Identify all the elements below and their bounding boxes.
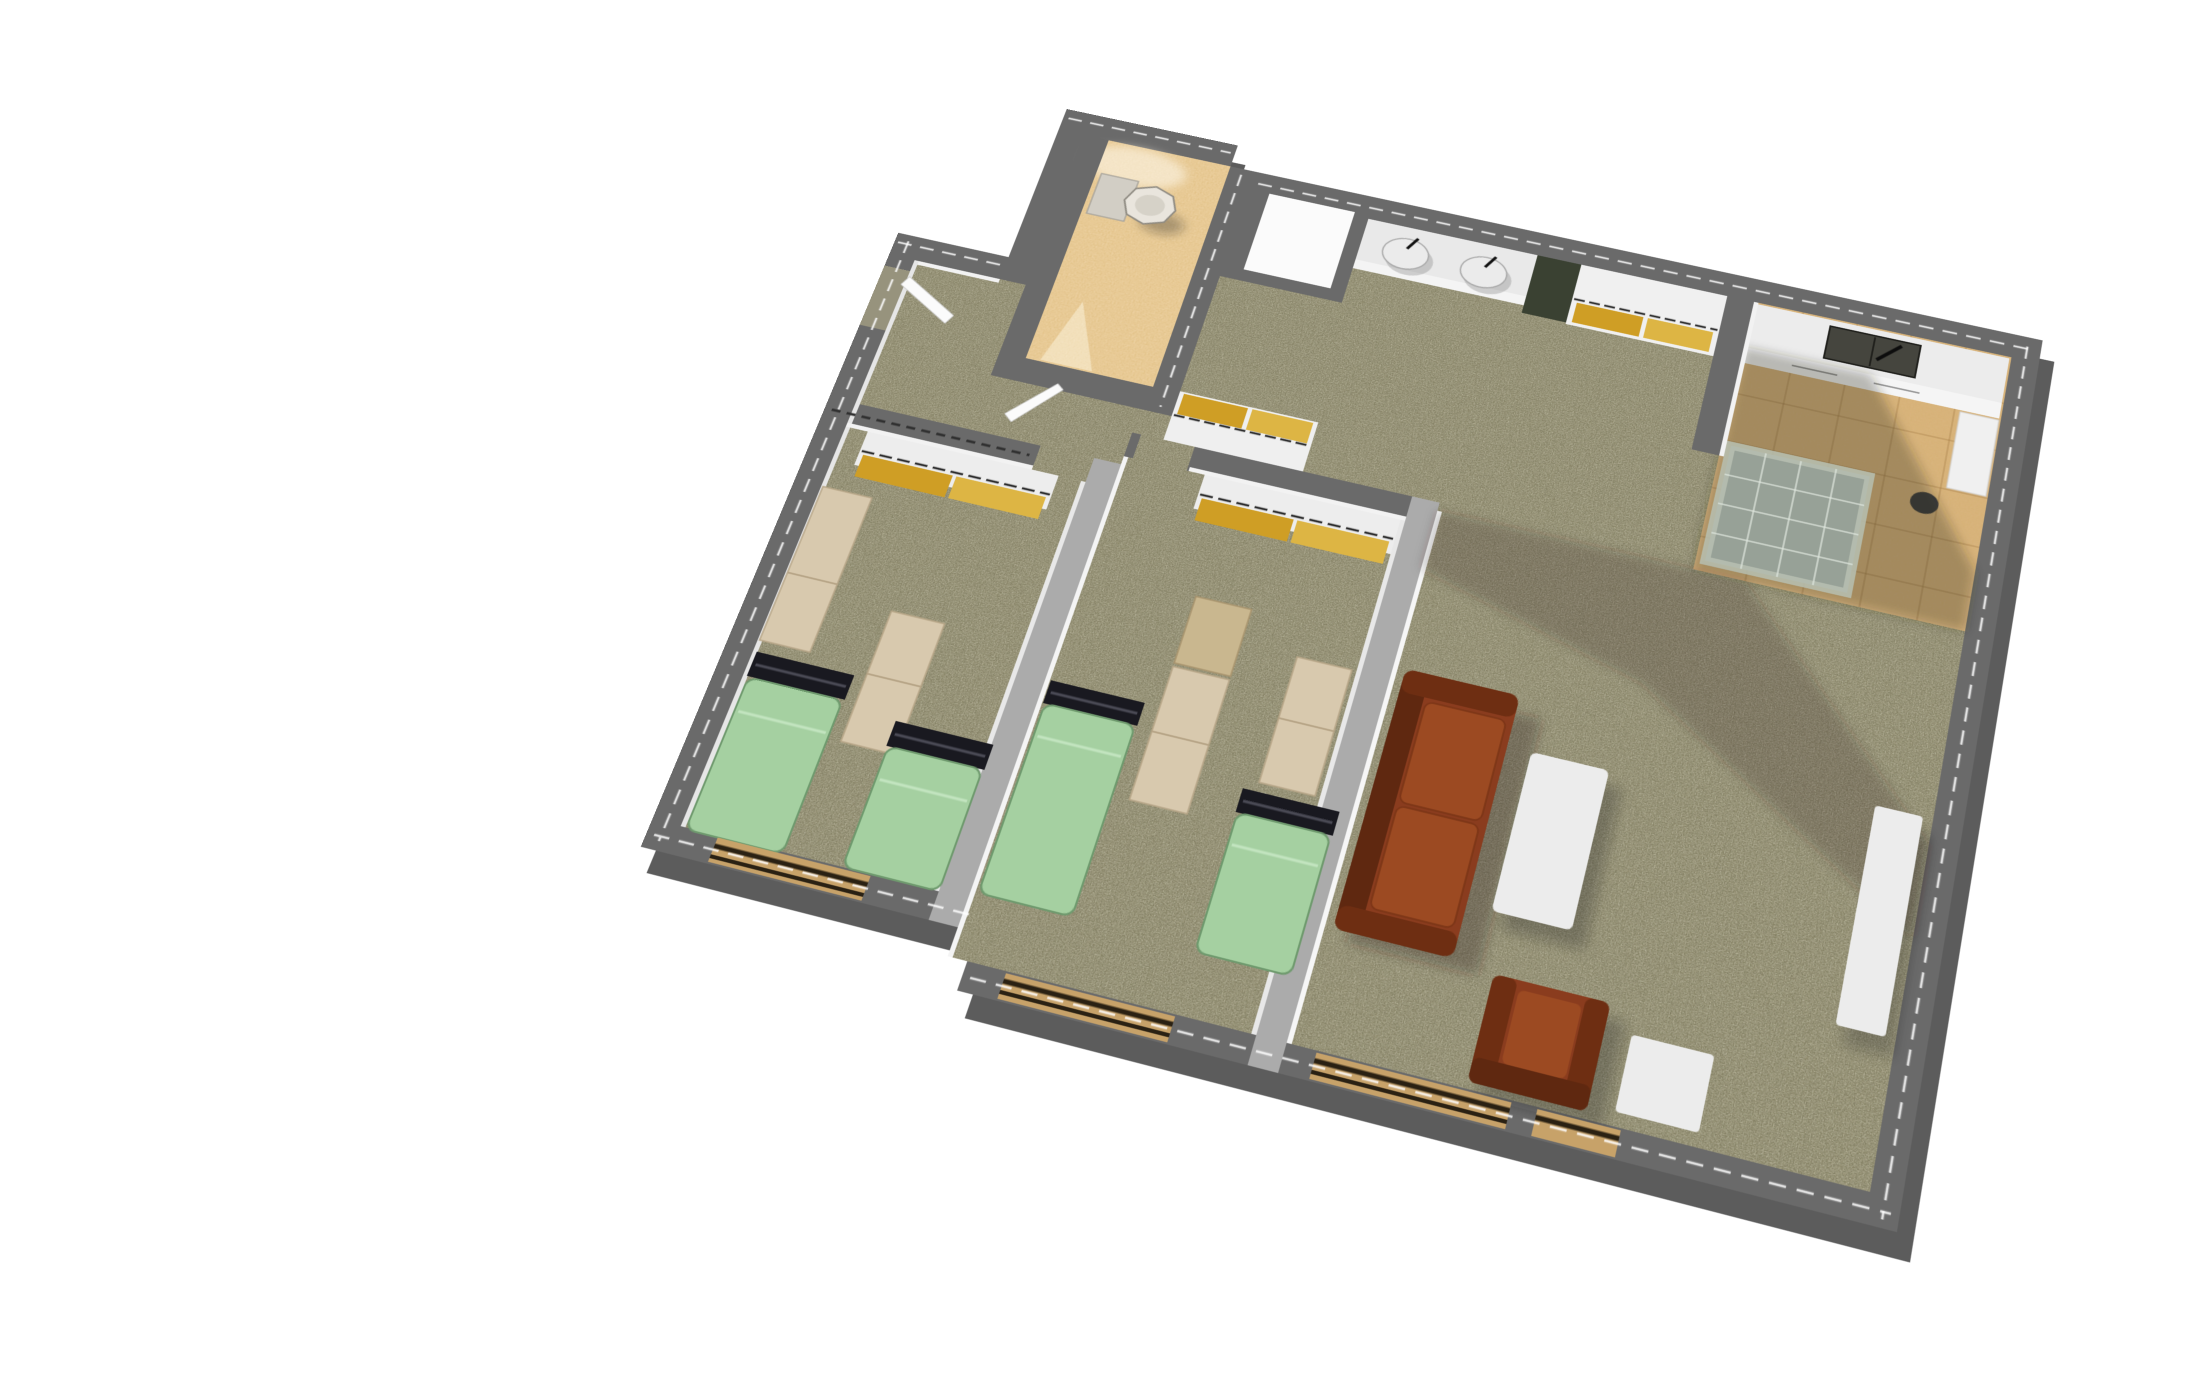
floorplan-3d-render [601,86,2119,1298]
floorplan-shapes [607,86,2060,1262]
scene [601,86,2119,1298]
